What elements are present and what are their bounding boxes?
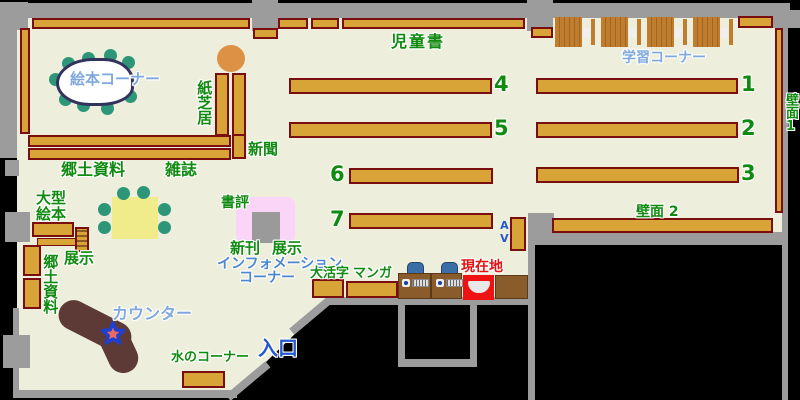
bookshelf-under-pillar-1: [253, 28, 278, 39]
wall-left-protrusion: [5, 212, 30, 242]
study-corner-label: 学習コーナー: [622, 51, 706, 66]
chair-dot-icon: [98, 221, 111, 234]
bookshelf-av: [510, 217, 526, 251]
bookshelf-top-right: [738, 16, 773, 28]
wall-vestibule-left: [398, 305, 405, 367]
study-chair: [583, 28, 590, 38]
bookshelf-wall-face-2: [552, 218, 773, 233]
study-desk-side: [591, 19, 595, 45]
study-desk: [647, 17, 674, 47]
wall-bookshelf-top-c: [311, 18, 339, 29]
opac-keyboard: [446, 279, 463, 287]
large-picture-books-label: 大型 絵本: [36, 190, 66, 222]
current-location-label: 現在地: [461, 260, 503, 275]
wall-bookshelf-top-a: [32, 18, 250, 29]
wall-vestibule-right: [470, 305, 477, 367]
water-corner-label: 水のコーナー: [171, 351, 249, 365]
study-desk: [555, 17, 582, 47]
bookshelf-local-materials-2: [23, 278, 41, 309]
study-desk-side: [683, 19, 687, 45]
library-floor-map: 絵本コーナー 紙芝居 新聞 児童書 学習コーナー 壁面1 壁面 2 郷土資料 雑…: [0, 0, 800, 400]
bookshelf-large-picture-books-low: [37, 238, 76, 246]
wall-left: [0, 3, 17, 158]
bookshelf-7: [349, 213, 493, 229]
study-desk-side: [637, 19, 641, 45]
chair-dot-icon: [117, 187, 130, 200]
wall-bookshelf-top-b: [278, 18, 308, 29]
new-arrivals-label: 新刊: [230, 240, 260, 256]
wall-left-step: [5, 160, 19, 176]
counter-label: カウンター: [112, 305, 192, 322]
opac-screen-dot-icon: [438, 281, 442, 285]
bookshelf-4: [289, 78, 492, 94]
bookshelf-kamishibai-1: [215, 73, 229, 136]
bookshelf-6: [349, 168, 493, 184]
shelf-number-5: 5: [494, 117, 509, 140]
bookshelf-kamishibai-2: [232, 73, 246, 136]
magazines-label: 雑誌: [165, 161, 197, 178]
shelf-number-2: 2: [741, 117, 756, 140]
wall-face-2-label: 壁面 2: [636, 205, 679, 220]
wall-corridor-left: [528, 233, 535, 400]
wall-bookshelf-top-d: [342, 18, 525, 29]
shelf-number-4: 4: [494, 73, 509, 96]
study-desk-side: [729, 19, 733, 45]
picture-book-corner-label: 絵本コーナー: [70, 71, 160, 87]
study-chair: [675, 28, 682, 38]
bookshelf-newspaper-corner: [232, 133, 246, 159]
bookshelf-1: [536, 78, 738, 94]
chair-dot-icon: [158, 203, 171, 216]
display-left-label: 展示: [64, 250, 94, 266]
local-materials-left-label: 郷土資料: [42, 254, 58, 314]
bookshelf-manga: [346, 281, 398, 298]
chair-dot-icon: [158, 221, 171, 234]
bookshelf-local-materials-1: [23, 245, 41, 276]
entrance-label: 入口: [258, 338, 298, 360]
wall-pillar-1: [252, 0, 278, 31]
children-books-label: 児童書: [391, 33, 445, 50]
shelf-number-1: 1: [741, 73, 756, 96]
newspaper-label: 新聞: [248, 141, 278, 157]
bookshelf-left-vertical: [20, 28, 30, 134]
study-chair: [629, 28, 636, 38]
large-print-label: 大活字: [310, 267, 349, 281]
wall-bottom-left: [13, 390, 237, 398]
bookshelf-2: [536, 122, 738, 138]
local-materials-label: 郷土資料: [61, 161, 125, 178]
book-review-label: 書評: [221, 196, 249, 211]
bookshelf-5: [289, 122, 492, 138]
reading-table: [112, 197, 158, 239]
opac-keyboard: [412, 279, 429, 287]
wall-bottom-right: [528, 232, 782, 245]
manga-label: マンガ: [353, 267, 392, 281]
service-desk: [495, 275, 528, 299]
study-desk: [693, 17, 720, 47]
wall-left-block: [3, 335, 30, 368]
bookshelf-ehon-bottom-1: [28, 135, 231, 147]
bookshelf-under-pillar-2: [531, 27, 553, 38]
kamishibai-label: 紙芝居: [196, 80, 212, 125]
information-corner-label-2: コーナー: [239, 271, 295, 286]
bookshelf-ehon-bottom-2: [28, 148, 231, 160]
study-desk: [601, 17, 628, 47]
chair-dot-icon: [98, 203, 111, 216]
bookshelf-large-picture-books: [32, 222, 74, 237]
wall-vestibule-bottom: [398, 359, 477, 367]
wall-face-1-label: 壁面1: [783, 93, 797, 134]
wall-top: [0, 3, 790, 18]
bookshelf-large-print: [312, 279, 344, 298]
shelf-number-7: 7: [330, 208, 345, 231]
shelf-number-3: 3: [741, 162, 756, 185]
shelf-number-6: 6: [330, 163, 345, 186]
study-chair: [721, 28, 728, 38]
bookshelf-3: [536, 167, 739, 183]
opac-screen-dot-icon: [404, 281, 408, 285]
display-center-label: 展示: [272, 240, 302, 256]
round-table: [217, 45, 245, 72]
bookshelf-water-corner: [182, 371, 225, 388]
chair-dot-icon: [137, 186, 150, 199]
av-label: AV: [498, 219, 510, 245]
bookshelf-wall-face-1: [775, 28, 783, 213]
